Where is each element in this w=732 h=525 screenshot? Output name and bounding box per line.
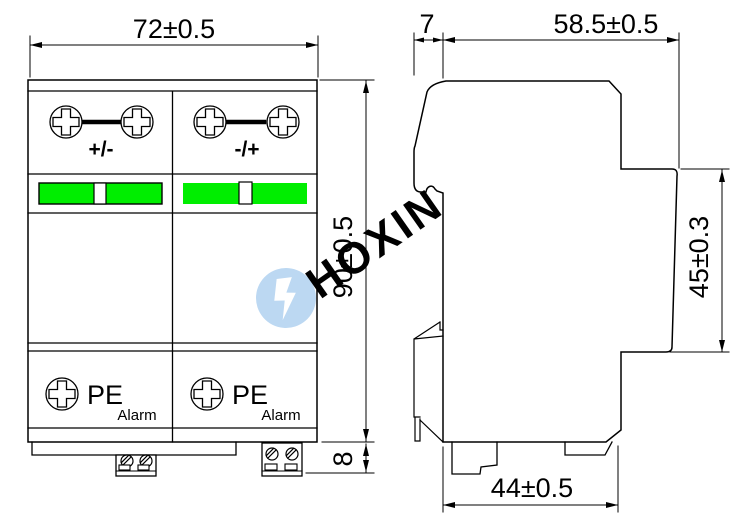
pe-label: PE: [87, 380, 123, 410]
arrowhead: [443, 37, 455, 43]
arrowhead: [719, 340, 725, 352]
alarm-label: Alarm: [261, 407, 300, 424]
pe-screw-icon: [46, 378, 78, 410]
dim-top-offset-label: 7: [419, 9, 434, 39]
side-view: 7 58.5±0.5 45±0.3 44±0.5: [414, 9, 729, 512]
phillips-screw-icon: [121, 106, 153, 138]
terminal-block-1: [116, 455, 156, 476]
pe-label: PE: [232, 380, 268, 410]
phillips-screw-icon: [50, 106, 82, 138]
polarity-label: +/-: [88, 138, 113, 161]
arrowhead: [306, 42, 318, 48]
bottom-feet: [452, 442, 612, 474]
bottom-plate: [32, 442, 236, 455]
terminal-block-2: [262, 443, 302, 476]
arrowhead: [363, 444, 369, 456]
dim-upper-height-label: 45±0.3: [684, 216, 714, 298]
technical-drawing: HOXIN +/- PE Alarm -/+ PE A: [0, 0, 732, 525]
arrowhead: [443, 502, 455, 508]
terminal-screw-icon: [266, 448, 278, 460]
alarm-label: Alarm: [117, 407, 156, 424]
pe-screw-icon: [191, 378, 223, 410]
arrowhead: [719, 170, 725, 182]
front-view: +/- PE Alarm -/+ PE Alarm: [28, 14, 374, 476]
arrowhead: [667, 37, 679, 43]
left-foot: [452, 442, 497, 474]
arrowhead: [30, 42, 42, 48]
dim-width-label: 72±0.5: [133, 14, 215, 44]
dim-height-label: 90±0.5: [328, 216, 358, 298]
extension-lines: [414, 33, 729, 512]
phillips-screw-icon: [267, 106, 299, 138]
right-foot: [565, 442, 612, 455]
drawing-canvas: HOXIN +/- PE Alarm -/+ PE A: [0, 0, 732, 525]
module-2: -/+ PE Alarm: [183, 106, 307, 424]
side-body-outline: [414, 81, 677, 442]
dim-base-depth-label: 44±0.5: [491, 473, 573, 503]
din-rail-clip: [414, 322, 443, 442]
arrowhead: [363, 460, 369, 472]
polarity-label: -/+: [234, 138, 259, 161]
arrowhead: [363, 81, 369, 93]
indicator-flag: [94, 183, 106, 204]
dim-depth-label: 58.5±0.5: [554, 9, 659, 39]
arrowhead: [606, 502, 618, 508]
terminal-screw-icon: [286, 448, 298, 460]
arrowhead: [363, 429, 369, 441]
module-1: +/- PE Alarm: [39, 106, 162, 424]
phillips-screw-icon: [194, 106, 226, 138]
side-dimensions: 7 58.5±0.5 45±0.3 44±0.5: [414, 9, 729, 512]
watermark-text: HOXIN: [298, 180, 453, 309]
dim-terminal-label: 8: [328, 451, 358, 466]
indicator-flag: [239, 182, 252, 204]
